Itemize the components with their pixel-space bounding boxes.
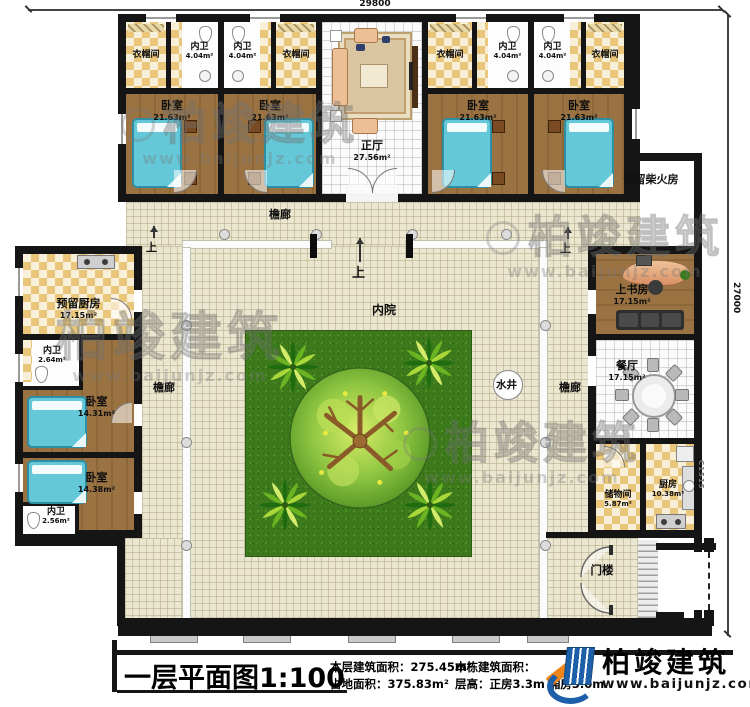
chair-icon bbox=[647, 418, 659, 432]
room-name: 内卫 bbox=[534, 42, 571, 52]
palm-tree-icon bbox=[400, 334, 458, 392]
room-label-bedroom: 卧室14.38m² bbox=[59, 472, 134, 494]
room-label-main-hall: 正厅27.56m² bbox=[322, 140, 422, 162]
door-arc bbox=[244, 170, 267, 193]
bathroom-1: 内卫4.04m² bbox=[171, 22, 218, 88]
column-base bbox=[181, 320, 192, 331]
sink-icon bbox=[542, 70, 554, 82]
room-name: 预留厨房 bbox=[23, 298, 134, 311]
room-name: 内卫 bbox=[29, 346, 75, 356]
wall-segment bbox=[126, 88, 218, 94]
palm-tree-icon bbox=[264, 338, 322, 396]
door-arc bbox=[432, 170, 455, 193]
room-label-dining: 餐厅17.15m² bbox=[596, 360, 658, 382]
window bbox=[250, 14, 280, 22]
nightstand-icon bbox=[492, 172, 505, 185]
door-arc bbox=[604, 446, 625, 467]
window bbox=[118, 114, 126, 144]
wall-segment bbox=[15, 538, 125, 546]
gate-double-door bbox=[578, 544, 614, 616]
dimension-top-label: 29800 bbox=[345, 0, 405, 9]
step-arrow bbox=[359, 238, 361, 262]
room-area: 21.63m² bbox=[534, 113, 624, 122]
bath-tiles bbox=[260, 22, 271, 88]
cloakroom-2: 衣帽间 bbox=[276, 22, 316, 88]
room-label-bath: 内卫4.04m² bbox=[534, 42, 571, 60]
wall-segment bbox=[472, 22, 477, 88]
bathroom-264: 内卫2.64m² bbox=[23, 340, 83, 390]
wall-segment bbox=[638, 153, 694, 161]
cloakroom-3: 衣帽间 bbox=[428, 22, 472, 88]
room-area: 10.38m² bbox=[646, 490, 690, 498]
bedroom-4: 内卫4.04m² 衣帽间 卧室21.63m² bbox=[534, 22, 624, 194]
column-base bbox=[540, 320, 551, 331]
gate-opening-dashed-line bbox=[708, 552, 710, 610]
west-wing: 预留厨房17.15m² 内卫2.64m² 卧室14.31m² 卧室14.38m²… bbox=[15, 246, 142, 538]
step-up-mark: 上 bbox=[560, 240, 571, 256]
room-label-veranda-east: 檐廊 bbox=[548, 382, 592, 395]
nightstand-icon bbox=[492, 120, 505, 133]
site-area-label: 占地面积： bbox=[330, 677, 388, 691]
gate-steps bbox=[638, 540, 658, 618]
room-label-study: 上书房17.15m² bbox=[596, 284, 668, 306]
chair-icon bbox=[675, 389, 689, 401]
cushion-icon bbox=[382, 36, 390, 43]
room-name: 卧室 bbox=[534, 100, 624, 113]
bathroom-4: 内卫4.04m² bbox=[534, 22, 581, 88]
window bbox=[146, 14, 176, 22]
bedroom-1: 衣帽间 内卫4.04m² 卧室21.63m² bbox=[126, 22, 218, 194]
floor-area-line: 本层建筑面积：275.45m² bbox=[330, 659, 472, 676]
double-door-arc bbox=[348, 168, 373, 193]
sofa-cushion bbox=[619, 313, 638, 327]
toilet-icon bbox=[507, 26, 520, 43]
room-area: 21.63m² bbox=[126, 113, 218, 122]
coffee-table-icon bbox=[360, 64, 388, 88]
bed-icon bbox=[264, 118, 314, 188]
room-name: 衣帽间 bbox=[126, 50, 166, 60]
room-label-bedroom: 卧室21.63m² bbox=[224, 100, 316, 122]
room-name: 内卫 bbox=[487, 42, 528, 52]
bathroom-3: 内卫4.04m² bbox=[477, 22, 528, 88]
wardrobe-icon bbox=[128, 24, 164, 32]
reserved-kitchen: 预留厨房17.15m² bbox=[23, 254, 134, 334]
brand-url: www.baijunjz.com bbox=[602, 676, 750, 692]
door-arc bbox=[174, 170, 197, 193]
door-opening bbox=[134, 290, 142, 312]
stove-icon bbox=[656, 514, 686, 529]
step-up-mark: 上 bbox=[146, 239, 157, 255]
fridge-icon bbox=[676, 446, 694, 462]
cloakroom-4: 衣帽间 bbox=[586, 22, 624, 88]
column-base bbox=[219, 229, 230, 240]
double-door-arc bbox=[372, 168, 397, 193]
room-name: 厨房 bbox=[646, 480, 690, 490]
door-opening bbox=[134, 492, 142, 514]
room-area: 14.31m² bbox=[59, 409, 134, 418]
courtyard-edge-band bbox=[405, 240, 548, 249]
brand-name: 柏竣建筑 bbox=[602, 641, 730, 681]
bedroom-3: 衣帽间 内卫4.04m² 卧室21.63m² bbox=[428, 22, 528, 194]
room-area: 27.56m² bbox=[322, 153, 422, 162]
palm-tree-icon bbox=[401, 476, 459, 534]
sink-icon bbox=[232, 70, 244, 82]
bedroom-west-2: 卧室14.38m² 内卫2.56m² bbox=[23, 458, 134, 530]
toilet-icon bbox=[199, 26, 212, 43]
room-label-cloakroom: 衣帽间 bbox=[276, 50, 316, 60]
room-label-bedroom: 卧室21.63m² bbox=[428, 100, 528, 122]
armchair-icon bbox=[352, 118, 378, 134]
kitchen: 厨房10.38m² bbox=[646, 444, 694, 530]
room-area: 17.15m² bbox=[23, 311, 134, 320]
dining-room: 餐厅17.15m² bbox=[596, 340, 694, 438]
column-base bbox=[540, 437, 551, 448]
room-label-bath: 内卫2.56m² bbox=[37, 507, 75, 525]
sink-icon bbox=[507, 70, 519, 82]
wall-segment bbox=[704, 538, 714, 552]
door-arc bbox=[542, 170, 565, 193]
room-label-bath: 内卫2.64m² bbox=[29, 346, 75, 364]
sofa-icon bbox=[332, 48, 348, 106]
room-label-storage: 储物间5.87m² bbox=[596, 490, 640, 508]
room-name: 檐廊 bbox=[256, 209, 304, 222]
window bbox=[15, 268, 23, 296]
sink-icon bbox=[199, 70, 211, 82]
east-wing: 上书房17.15m² 餐厅17.15m² 储物间5.87m² 厨房10. bbox=[588, 246, 702, 538]
room-area: 2.56m² bbox=[37, 517, 75, 525]
room-label-bedroom: 卧室14.31m² bbox=[59, 396, 134, 418]
side-table-icon bbox=[330, 30, 342, 42]
palm-tree-icon bbox=[256, 476, 314, 534]
toilet-icon bbox=[542, 26, 555, 43]
toilet-icon bbox=[35, 366, 48, 383]
step-arrow bbox=[153, 226, 155, 238]
room-label-bedroom: 卧室21.63m² bbox=[534, 100, 624, 122]
sofa-cushion bbox=[662, 313, 681, 327]
room-label-inner-courtyard: 内院 bbox=[358, 304, 410, 318]
room-area: 4.04m² bbox=[224, 52, 261, 60]
window bbox=[632, 109, 640, 139]
room-name: 衣帽间 bbox=[586, 50, 624, 60]
door-opening bbox=[588, 290, 596, 314]
room-area: 14.38m² bbox=[59, 485, 134, 494]
wall-segment bbox=[166, 22, 171, 88]
window bbox=[15, 354, 23, 382]
building-area-line: 本栋建筑面积： bbox=[455, 659, 536, 676]
nightstand-icon bbox=[548, 120, 561, 133]
room-name: 卧室 bbox=[428, 100, 528, 113]
site-area-value: 375.83m² bbox=[388, 677, 449, 691]
building-area-label: 本栋建筑面积： bbox=[455, 660, 536, 674]
step-arrow bbox=[567, 227, 569, 239]
wall-segment bbox=[224, 88, 316, 94]
brand-logo-icon bbox=[545, 643, 599, 699]
window bbox=[564, 14, 594, 22]
room-label-well: 水井 bbox=[496, 377, 517, 392]
floor-area-label: 本层建筑面积： bbox=[330, 660, 411, 674]
column-base bbox=[181, 540, 192, 551]
site-area-line: 占地面积：375.83m² bbox=[330, 676, 449, 693]
room-name: 卧室 bbox=[224, 100, 316, 113]
column-base bbox=[181, 437, 192, 448]
bath-tiles bbox=[570, 22, 581, 88]
stove-icon bbox=[77, 255, 115, 269]
plan-title: 一层平面图1:100 bbox=[124, 656, 345, 695]
room-name: 内卫 bbox=[37, 507, 75, 517]
room-name: 内院 bbox=[358, 304, 410, 318]
monitor-icon bbox=[636, 255, 652, 266]
room-area: 4.04m² bbox=[534, 52, 571, 60]
cloakroom-1: 衣帽间 bbox=[126, 22, 166, 88]
sofa-cushion bbox=[641, 313, 660, 327]
room-label-bedroom: 卧室21.63m² bbox=[126, 100, 218, 122]
wall-segment bbox=[428, 88, 528, 94]
floor-plan: 29800 27000 檐廊 檐廊 檐廊 上 上 上 内院 bbox=[0, 0, 750, 707]
room-name: 正厅 bbox=[322, 140, 422, 153]
logo-blue-swoosh bbox=[547, 669, 594, 704]
room-label-cloakroom: 衣帽间 bbox=[126, 50, 166, 60]
room-area: 4.04m² bbox=[487, 52, 528, 60]
wardrobe-icon bbox=[278, 24, 314, 32]
window bbox=[456, 14, 486, 22]
wardrobe-icon bbox=[430, 24, 470, 32]
cushion-icon bbox=[356, 44, 365, 51]
armchair-icon bbox=[354, 28, 378, 43]
room-area: 5.87m² bbox=[596, 500, 640, 508]
nightstand-icon bbox=[248, 120, 261, 133]
veranda-column bbox=[406, 234, 413, 258]
room-area: 2.64m² bbox=[29, 356, 75, 364]
bedroom-west-1: 内卫2.64m² 卧室14.31m² bbox=[23, 340, 134, 452]
plant-icon bbox=[680, 270, 690, 280]
chair-icon bbox=[615, 389, 629, 401]
wardrobe-icon bbox=[588, 24, 622, 32]
side-table-icon bbox=[330, 110, 342, 122]
room-name: 卧室 bbox=[126, 100, 218, 113]
dimension-right-label: 27000 bbox=[731, 282, 741, 313]
storage-room: 储物间5.87m² bbox=[596, 444, 640, 530]
window bbox=[15, 464, 23, 492]
wall-segment bbox=[534, 88, 624, 94]
bedroom-2: 内卫4.04m² 衣帽间 卧室21.63m² bbox=[224, 22, 316, 194]
room-label-veranda-north: 檐廊 bbox=[256, 209, 304, 222]
toilet-icon bbox=[232, 26, 245, 43]
room-label-cloakroom: 衣帽间 bbox=[428, 50, 472, 60]
room-label-bath: 内卫4.04m² bbox=[487, 42, 528, 60]
room-label-bath: 内卫4.04m² bbox=[224, 42, 261, 60]
window-code-label: C1515 bbox=[697, 460, 705, 490]
room-area: 17.15m² bbox=[596, 297, 668, 306]
brand-url-text: www.baijunjz.com bbox=[602, 676, 750, 692]
room-label-kitchen: 厨房10.38m² bbox=[646, 480, 690, 498]
room-name: 卧室 bbox=[59, 472, 134, 485]
bathroom-256: 内卫2.56m² bbox=[23, 502, 79, 534]
storey-height-label: 层高： bbox=[455, 677, 490, 691]
south-site-wall bbox=[118, 618, 712, 636]
room-area: 17.15m² bbox=[596, 373, 658, 382]
room-label-gatehouse: 门楼 bbox=[576, 564, 628, 577]
room-name: 卧室 bbox=[59, 396, 134, 409]
dimension-top-line bbox=[28, 9, 722, 11]
room-label-reserved-kitchen: 预留厨房17.15m² bbox=[23, 298, 134, 320]
sofa-icon bbox=[616, 310, 684, 330]
room-name: 檐廊 bbox=[140, 382, 188, 395]
wall-segment bbox=[117, 538, 125, 626]
room-label-veranda-west: 檐廊 bbox=[140, 382, 188, 395]
east-site-wall bbox=[694, 153, 702, 552]
paving-southwest bbox=[125, 538, 188, 626]
room-area: 21.63m² bbox=[428, 113, 528, 122]
room-name: 储物间 bbox=[596, 490, 640, 500]
tv-icon bbox=[409, 62, 413, 90]
room-label-cloakroom: 衣帽间 bbox=[586, 50, 624, 60]
title-block-rule bbox=[112, 640, 117, 692]
room-area: 4.04m² bbox=[181, 52, 218, 60]
bathroom-2: 内卫4.04m² bbox=[224, 22, 271, 88]
room-name: 餐厅 bbox=[596, 360, 658, 373]
dimension-right-line bbox=[727, 14, 729, 636]
room-label-firewood: 预留柴火房 bbox=[598, 171, 704, 187]
room-label-bath: 内卫4.04m² bbox=[181, 42, 218, 60]
study: 上书房17.15m² bbox=[596, 254, 694, 334]
door-opening bbox=[134, 404, 142, 426]
room-name: 檐廊 bbox=[548, 382, 592, 395]
room-name: 衣帽间 bbox=[276, 50, 316, 60]
veranda-column bbox=[310, 234, 317, 258]
step-up-mark: 上 bbox=[352, 262, 365, 281]
wall-segment bbox=[546, 532, 596, 538]
room-name: 衣帽间 bbox=[428, 50, 472, 60]
column-base bbox=[540, 540, 551, 551]
room-area: 21.63m² bbox=[224, 113, 316, 122]
room-name: 内卫 bbox=[181, 42, 218, 52]
nightstand-icon bbox=[184, 120, 197, 133]
room-name: 门楼 bbox=[576, 564, 628, 577]
room-name: 上书房 bbox=[596, 284, 668, 297]
room-name: 内卫 bbox=[224, 42, 261, 52]
main-hall: 正厅27.56m² bbox=[322, 22, 422, 194]
column-base bbox=[501, 229, 512, 240]
north-wing: 衣帽间 内卫4.04m² 卧室21.63m² 内卫4.04m² bbox=[118, 14, 640, 202]
